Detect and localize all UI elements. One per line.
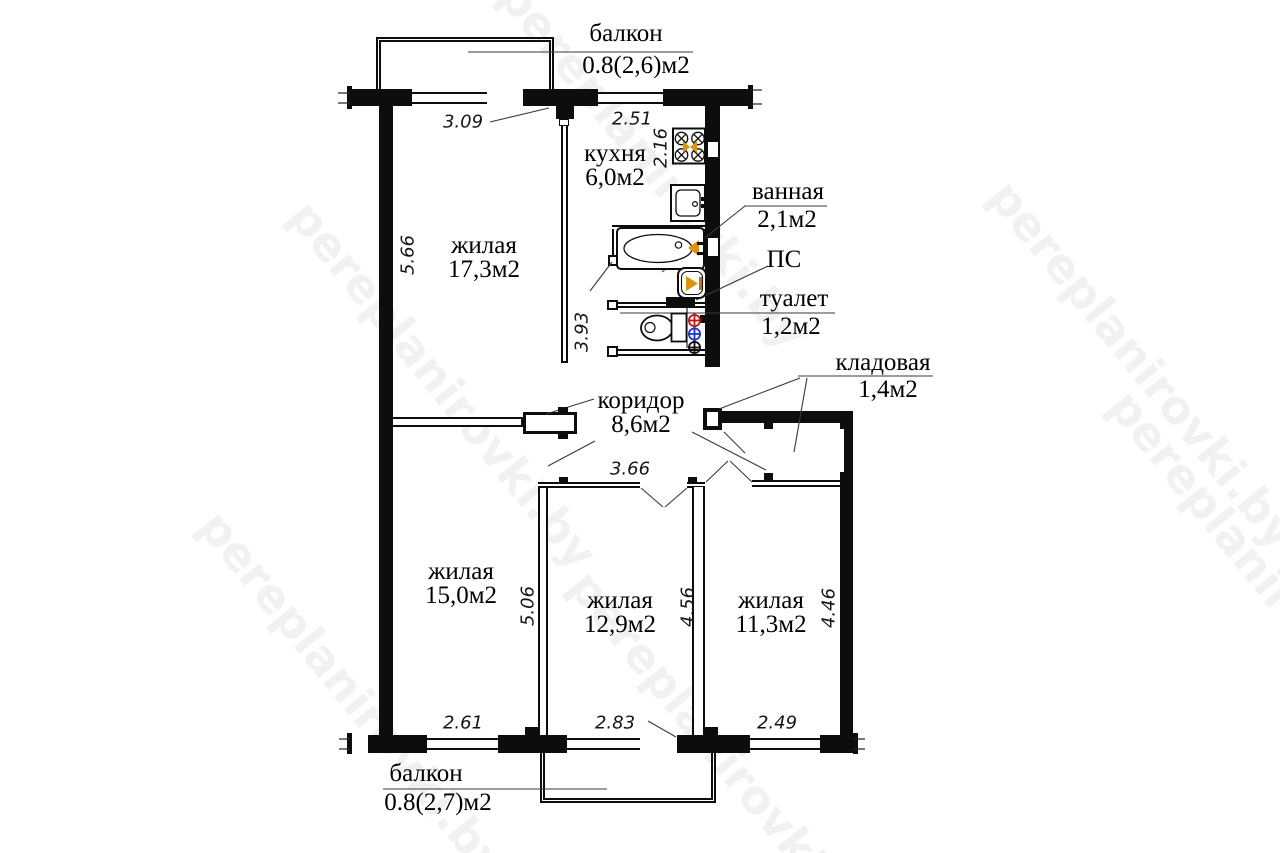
room-label-corridor: коридор 8,6м2 bbox=[598, 389, 685, 437]
room-name: жилая bbox=[738, 587, 804, 614]
balcony-bottom-label: балкон bbox=[389, 762, 462, 786]
room-name: жилая bbox=[428, 558, 494, 585]
washbasin-icon bbox=[678, 268, 706, 298]
stove-icon bbox=[673, 129, 705, 164]
kitchen-sink-icon bbox=[671, 185, 706, 221]
room-area: 6,0м2 bbox=[585, 164, 645, 191]
room-label-living4: жилая 11,3м2 bbox=[735, 589, 806, 637]
room-label-kitchen: кухня 6,0м2 bbox=[584, 142, 646, 190]
room-label-living2: жилая 15,0м2 bbox=[425, 560, 497, 608]
room-area: 17,3м2 bbox=[448, 256, 520, 283]
toilet-icon bbox=[641, 314, 687, 342]
room-area: 11,3м2 bbox=[735, 611, 806, 638]
balcony-top-label: балкон bbox=[589, 22, 662, 46]
water-riser-icons bbox=[687, 308, 705, 355]
room-area-storage: 1,4м2 bbox=[858, 378, 918, 402]
dim-2-83: 2.83 bbox=[595, 713, 635, 734]
room-area-toilet: 1,2м2 bbox=[761, 315, 821, 339]
bathtub-icon bbox=[617, 228, 704, 269]
room-name: кухня bbox=[584, 140, 646, 167]
balcony-top-area: 0.8(2,6)м2 bbox=[582, 54, 689, 78]
dim-3-09: 3.09 bbox=[443, 112, 483, 133]
dim-3-93: 3.93 bbox=[572, 312, 593, 352]
sewer-riser-icon bbox=[689, 341, 701, 355]
cold-water-riser-icon bbox=[689, 327, 701, 341]
dim-2-51: 2.51 bbox=[612, 109, 652, 130]
dim-2-16: 2.16 bbox=[651, 128, 672, 168]
room-name: коридор bbox=[598, 387, 685, 414]
room-label-bath: ванная bbox=[752, 180, 824, 204]
room-area-bath: 2,1м2 bbox=[757, 208, 817, 232]
dim-2-49: 2.49 bbox=[757, 713, 797, 734]
floor-plan: pereplanirovki.by pereplanirovki.by pere… bbox=[0, 0, 1280, 853]
dim-3-66: 3.66 bbox=[610, 459, 650, 480]
balcony-bottom-area: 0.8(2,7)м2 bbox=[384, 791, 491, 815]
ventilation-block bbox=[666, 297, 695, 306]
room-label-storage: кладовая bbox=[835, 351, 930, 375]
dim-5-06: 5.06 bbox=[518, 586, 539, 626]
dim-4-56: 4.56 bbox=[678, 587, 699, 627]
room-area: 8,6м2 bbox=[611, 411, 671, 438]
room-label-living1: жилая 17,3м2 bbox=[448, 234, 520, 282]
door-swing-lines bbox=[641, 432, 752, 507]
room-area: 12,9м2 bbox=[584, 611, 656, 638]
hot-water-riser-icon bbox=[689, 314, 701, 328]
room-name: жилая bbox=[587, 587, 653, 614]
dim-5-66: 5.66 bbox=[398, 235, 419, 275]
room-label-toilet: туалет bbox=[760, 287, 829, 311]
room-area: 15,0м2 bbox=[425, 582, 497, 609]
dim-4-46: 4.46 bbox=[819, 588, 840, 628]
dim-2-61: 2.61 bbox=[443, 713, 483, 734]
room-label-ps: ПС bbox=[767, 248, 802, 272]
room-label-living3: жилая 12,9м2 bbox=[584, 589, 656, 637]
room-name: жилая bbox=[451, 232, 517, 259]
